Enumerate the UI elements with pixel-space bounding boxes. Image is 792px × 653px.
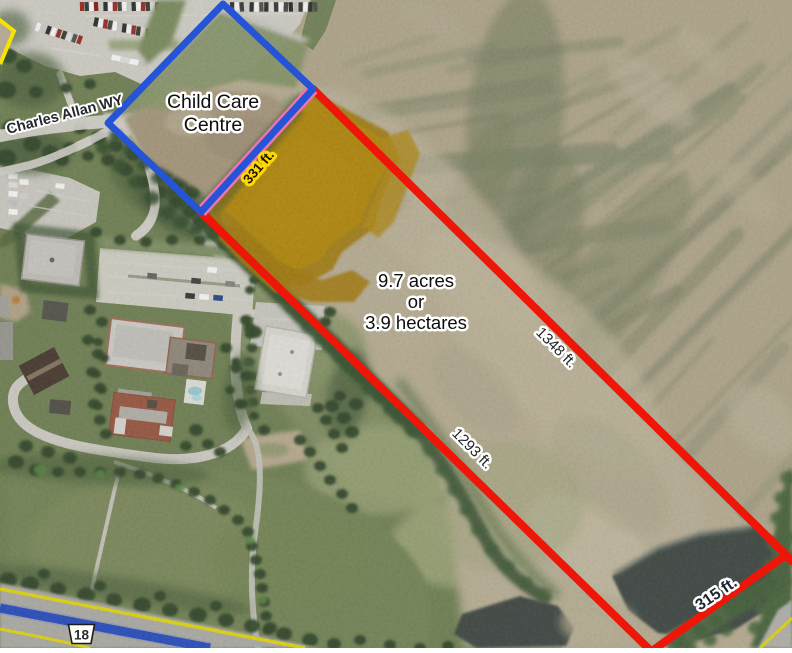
svg-text:or: or bbox=[408, 291, 424, 312]
svg-text:Child Care: Child Care bbox=[167, 91, 259, 113]
svg-text:Centre: Centre bbox=[184, 114, 243, 136]
svg-text:9.7 acres: 9.7 acres bbox=[378, 270, 454, 291]
svg-text:3.9 hectares: 3.9 hectares bbox=[365, 312, 467, 333]
svg-text:18: 18 bbox=[74, 628, 90, 643]
